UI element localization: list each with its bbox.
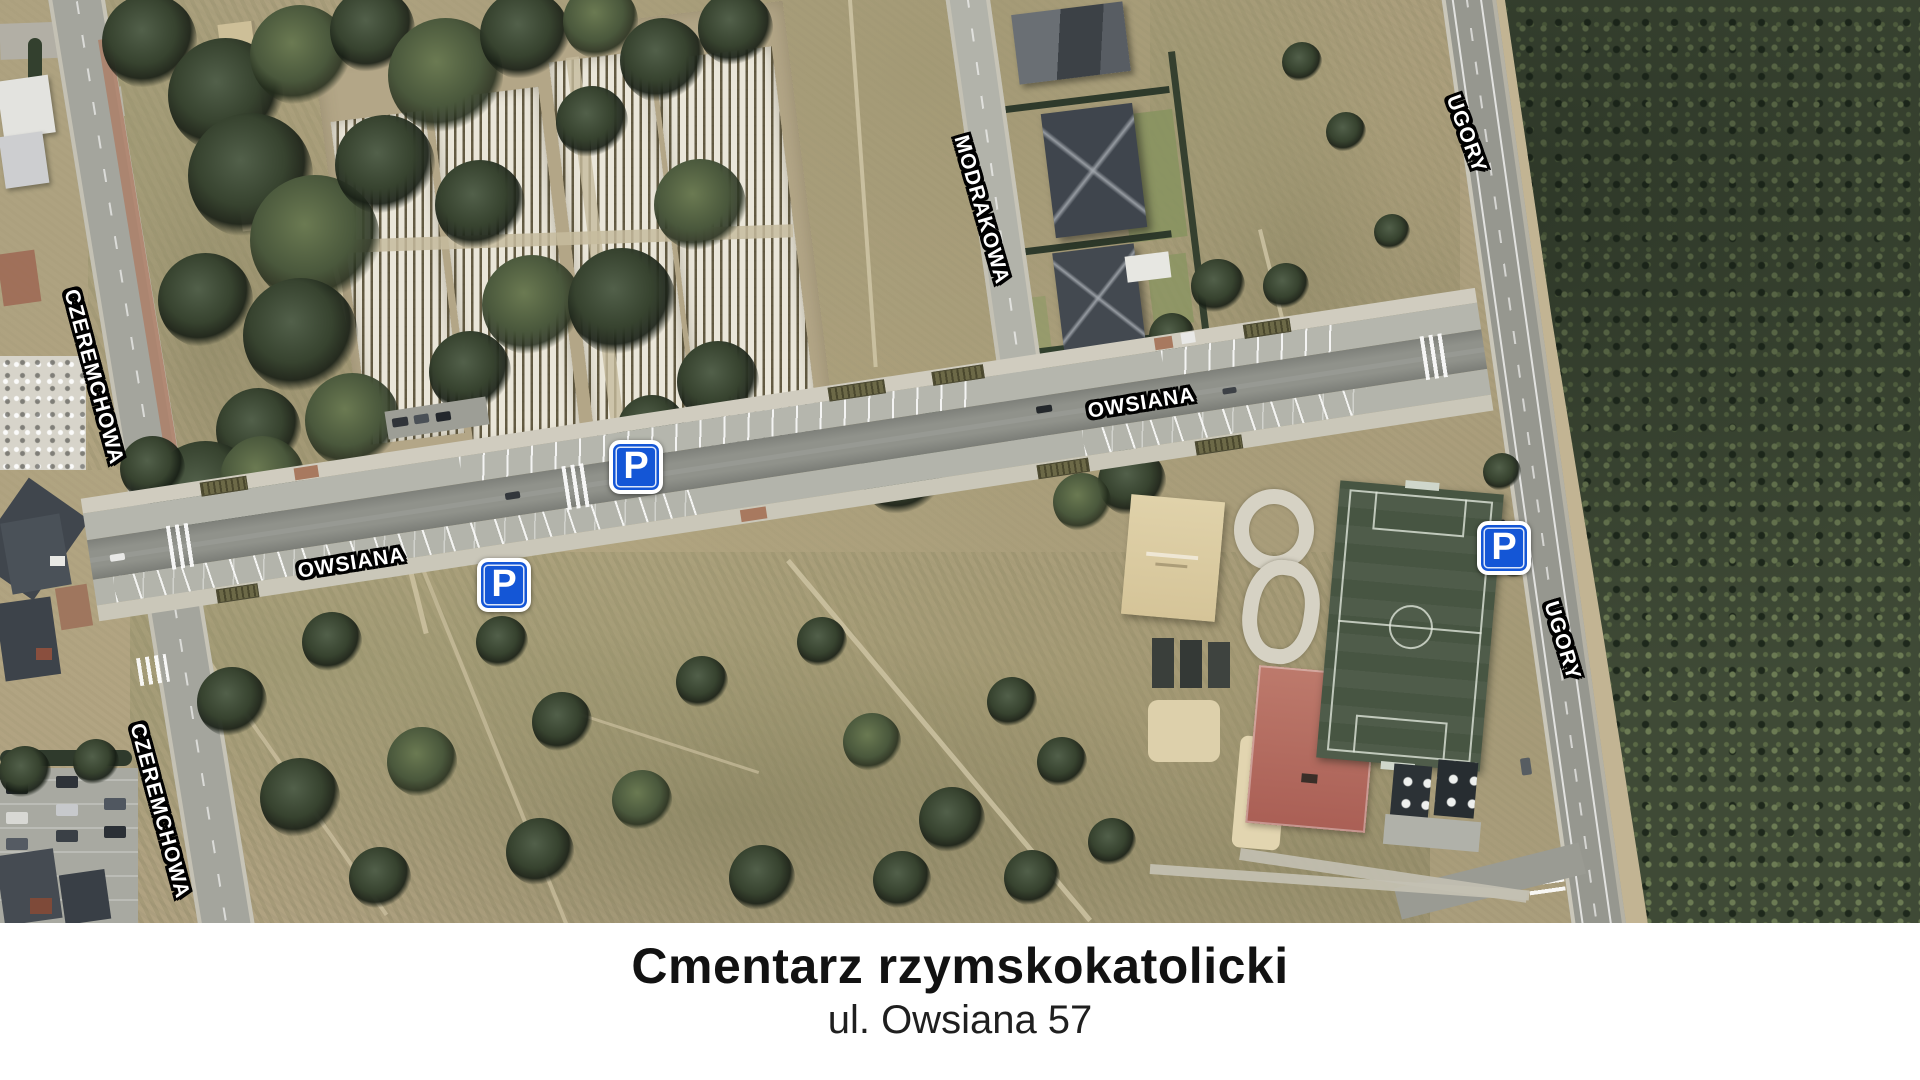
tree bbox=[0, 746, 51, 798]
tree bbox=[435, 160, 525, 250]
car bbox=[104, 798, 126, 810]
container bbox=[1208, 642, 1230, 688]
community-building bbox=[1121, 494, 1225, 622]
tree bbox=[797, 617, 847, 667]
rubble-lot bbox=[0, 356, 86, 470]
car bbox=[104, 826, 126, 838]
parking-sign-glyph: P bbox=[491, 565, 516, 603]
villa-roof bbox=[0, 513, 72, 594]
tree bbox=[260, 758, 340, 838]
sports-field bbox=[1316, 480, 1504, 771]
bus-shelter bbox=[1180, 331, 1195, 344]
tree bbox=[556, 86, 628, 158]
car bbox=[56, 804, 78, 816]
container bbox=[1152, 638, 1174, 688]
storage-containers bbox=[1152, 638, 1232, 692]
tree bbox=[476, 616, 528, 668]
aerial-map: P P P CZEREMCHOWA CZEREMCHOWA MODRAKOWA … bbox=[0, 0, 1920, 923]
tree bbox=[197, 667, 267, 737]
penalty-box bbox=[1372, 491, 1467, 537]
parking-sign: P bbox=[477, 558, 531, 612]
house-roof bbox=[0, 75, 56, 140]
car bbox=[6, 812, 28, 824]
parking-sign: P bbox=[1477, 521, 1531, 575]
penalty-box bbox=[1353, 715, 1448, 761]
parking-sign-glyph: P bbox=[623, 447, 648, 485]
red-roof bbox=[36, 648, 52, 660]
container bbox=[1180, 640, 1202, 688]
brick-paving bbox=[55, 584, 93, 630]
pump-track-loop bbox=[1234, 489, 1314, 571]
tree bbox=[676, 656, 728, 708]
poster: P P P CZEREMCHOWA CZEREMCHOWA MODRAKOWA … bbox=[0, 0, 1920, 1080]
tree bbox=[335, 115, 435, 215]
tree bbox=[654, 159, 746, 251]
footpath bbox=[848, 0, 878, 367]
house-roof-flat bbox=[1011, 1, 1131, 84]
brick-paving bbox=[0, 250, 41, 307]
place-address: ul. Owsiana 57 bbox=[0, 997, 1920, 1043]
tree bbox=[1191, 259, 1245, 313]
tree bbox=[482, 255, 582, 355]
crosswalk bbox=[136, 654, 170, 686]
house-roof bbox=[0, 596, 61, 681]
car bbox=[6, 838, 28, 850]
car bbox=[1520, 757, 1532, 775]
roof-marking bbox=[1146, 552, 1198, 561]
tree bbox=[873, 851, 931, 909]
tree bbox=[987, 677, 1037, 727]
tree bbox=[1004, 850, 1060, 906]
court-mark bbox=[1301, 773, 1318, 783]
tree bbox=[387, 727, 457, 797]
tree bbox=[1374, 214, 1410, 250]
car bbox=[413, 413, 429, 424]
house-roof bbox=[0, 131, 49, 189]
house-roof-hip bbox=[1041, 103, 1148, 238]
tree bbox=[1282, 42, 1322, 82]
goal bbox=[1405, 480, 1440, 491]
tree bbox=[532, 692, 592, 752]
villa-porch bbox=[50, 556, 65, 566]
playground-sand bbox=[1148, 700, 1220, 762]
tree bbox=[1053, 473, 1111, 531]
car bbox=[56, 830, 78, 842]
tree bbox=[843, 713, 901, 771]
pavilion-roof bbox=[1434, 759, 1479, 818]
tree bbox=[1263, 263, 1309, 309]
tree bbox=[302, 612, 362, 672]
tree bbox=[919, 787, 985, 853]
tree bbox=[1088, 818, 1136, 866]
car bbox=[56, 776, 78, 788]
tree bbox=[729, 845, 795, 911]
house-roof bbox=[59, 869, 112, 923]
tree bbox=[1326, 112, 1366, 152]
tree bbox=[620, 18, 705, 103]
car bbox=[392, 416, 409, 427]
tree bbox=[349, 847, 411, 909]
red-roof bbox=[30, 898, 52, 914]
tree bbox=[158, 253, 253, 348]
place-title: Cmentarz rzymskokatolicki bbox=[0, 939, 1920, 993]
tree bbox=[73, 739, 119, 785]
tree bbox=[1037, 737, 1087, 787]
tree bbox=[1483, 453, 1521, 491]
tree bbox=[506, 818, 574, 886]
tree bbox=[612, 770, 672, 830]
roof-marking bbox=[1155, 562, 1187, 568]
parking-sign: P bbox=[609, 440, 663, 494]
map-caption: Cmentarz rzymskokatolicki ul. Owsiana 57 bbox=[0, 923, 1920, 1080]
parking-sign-glyph: P bbox=[1491, 528, 1516, 566]
car bbox=[435, 411, 451, 422]
tree bbox=[568, 248, 676, 356]
terrace bbox=[1125, 251, 1172, 282]
pavilion-roof bbox=[1390, 763, 1433, 820]
